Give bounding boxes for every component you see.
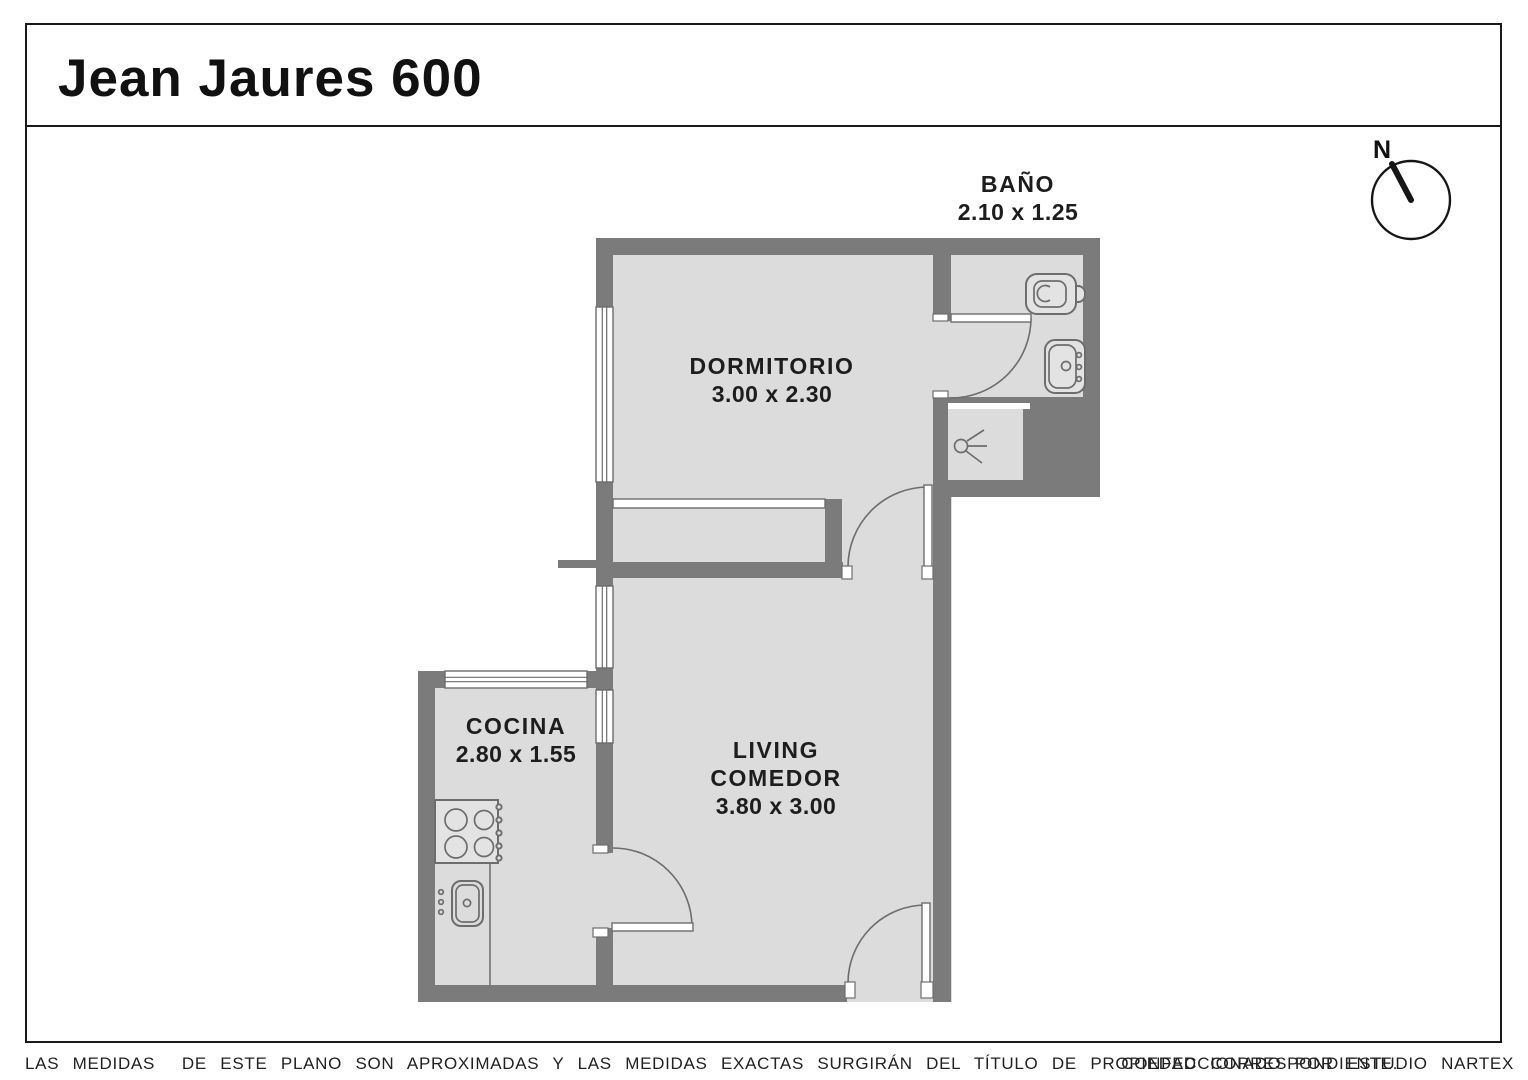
- room-label-bano: BAÑO 2.10 x 1.25: [958, 170, 1079, 226]
- room-label-living: LIVING COMEDOR 3.80 x 3.00: [710, 736, 841, 820]
- room-label-dormitorio: DORMITORIO 3.00 x 2.30: [689, 352, 854, 408]
- room-dims: 3.80 x 3.00: [710, 792, 841, 820]
- room-name: DORMITORIO: [689, 352, 854, 380]
- room-dims: 2.10 x 1.25: [958, 198, 1079, 226]
- room-name: COMEDOR: [710, 764, 841, 792]
- room-dims: 2.80 x 1.55: [456, 740, 577, 768]
- room-dims: 3.00 x 2.30: [689, 380, 854, 408]
- page-title: Jean Jaures 600: [58, 48, 483, 109]
- footer-credit: CONFECCIONADO POR ESTUDIO NARTEX: [1121, 1054, 1514, 1074]
- room-label-cocina: COCINA 2.80 x 1.55: [456, 712, 577, 768]
- compass-north-label: N: [1373, 136, 1391, 165]
- room-name: COCINA: [456, 712, 577, 740]
- room-name: BAÑO: [958, 170, 1079, 198]
- plan-frame: [25, 125, 1502, 1043]
- room-name: LIVING: [710, 736, 841, 764]
